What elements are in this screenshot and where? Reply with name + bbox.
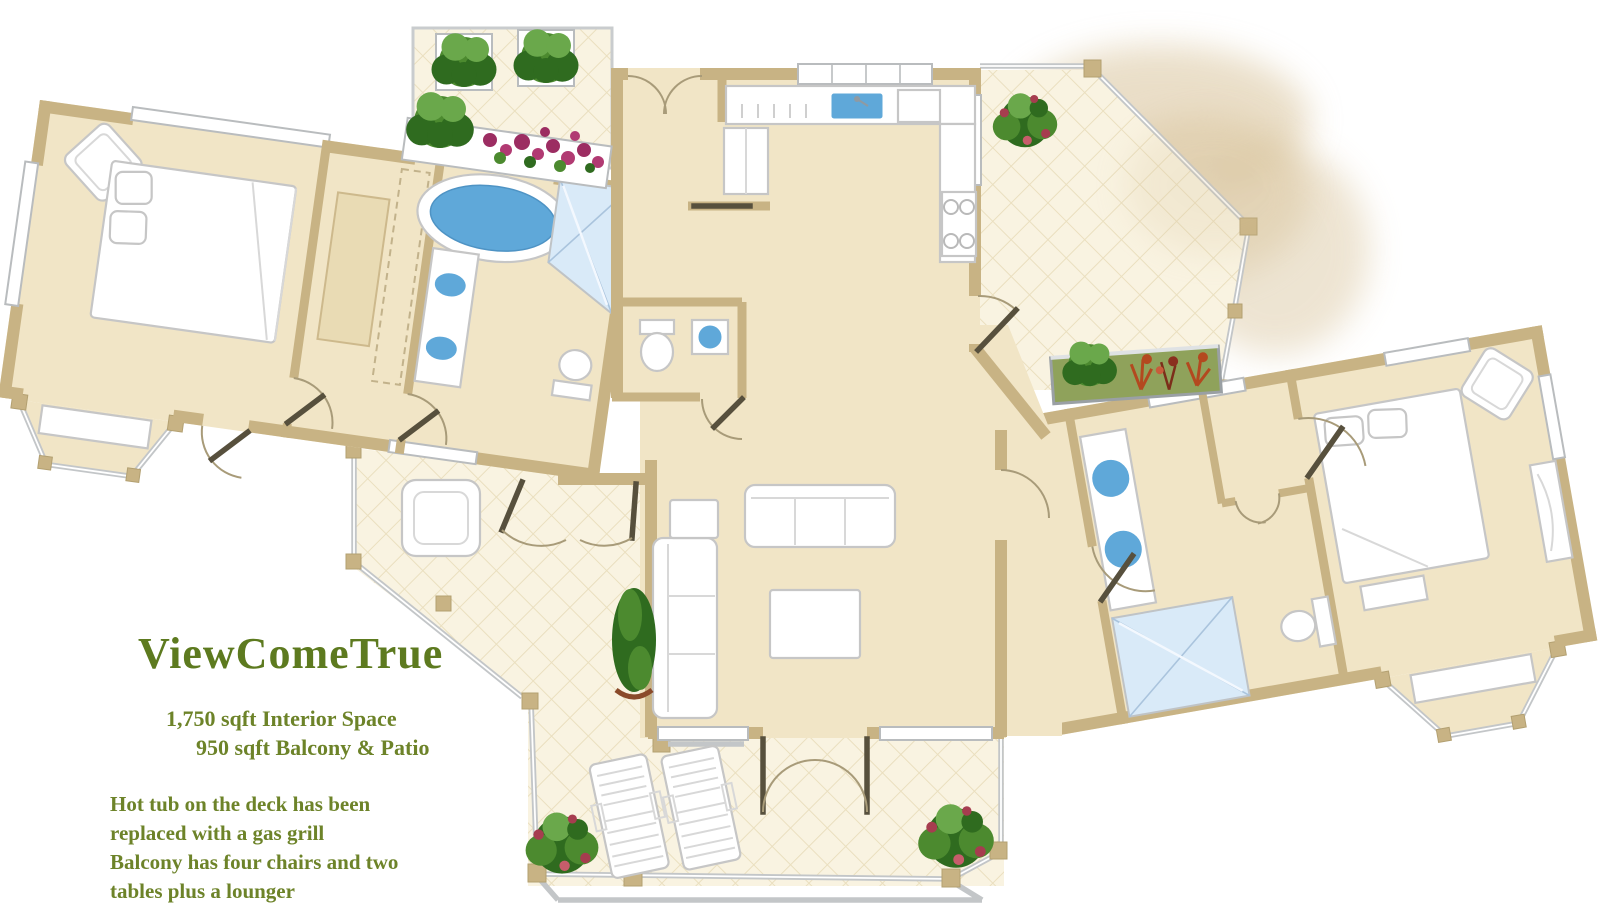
patio-post — [1084, 60, 1101, 77]
master-bed — [90, 161, 296, 343]
toilet-bowl — [641, 333, 673, 371]
end-table — [670, 500, 718, 538]
floor-plan-page: ViewComeTrue 1,750 sqft Interior Space 9… — [0, 0, 1600, 914]
balcony-area-line: 950 sqft Balcony & Patio — [196, 735, 429, 761]
note-line: replaced with a gas grill — [110, 819, 398, 848]
balcony-post — [346, 554, 361, 569]
powder-sink — [697, 324, 723, 350]
stove — [942, 192, 976, 256]
sofa-vertical — [653, 538, 717, 718]
deck-post — [528, 864, 546, 882]
patio-post — [1228, 304, 1242, 318]
plan-notes: Hot tub on the deck has been replaced wi… — [110, 790, 398, 906]
interior-area-line: 1,750 sqft Interior Space — [166, 706, 397, 732]
balcony-table — [402, 480, 480, 556]
shower2 — [1112, 597, 1250, 717]
dishwasher — [898, 90, 940, 122]
note-line: tables plus a lounger — [110, 877, 398, 906]
floor-plan-drawing — [0, 0, 1600, 914]
coffee-table — [770, 590, 860, 658]
sofa-horizontal — [745, 485, 895, 547]
plan-title: ViewComeTrue — [138, 628, 443, 679]
deck-post — [522, 693, 538, 709]
kitchen-window — [798, 64, 932, 84]
note-line: Balcony has four chairs and two — [110, 848, 398, 877]
balcony-post — [436, 596, 451, 611]
deck-post — [942, 869, 960, 887]
note-line: Hot tub on the deck has been — [110, 790, 398, 819]
side-balcony — [346, 443, 650, 737]
